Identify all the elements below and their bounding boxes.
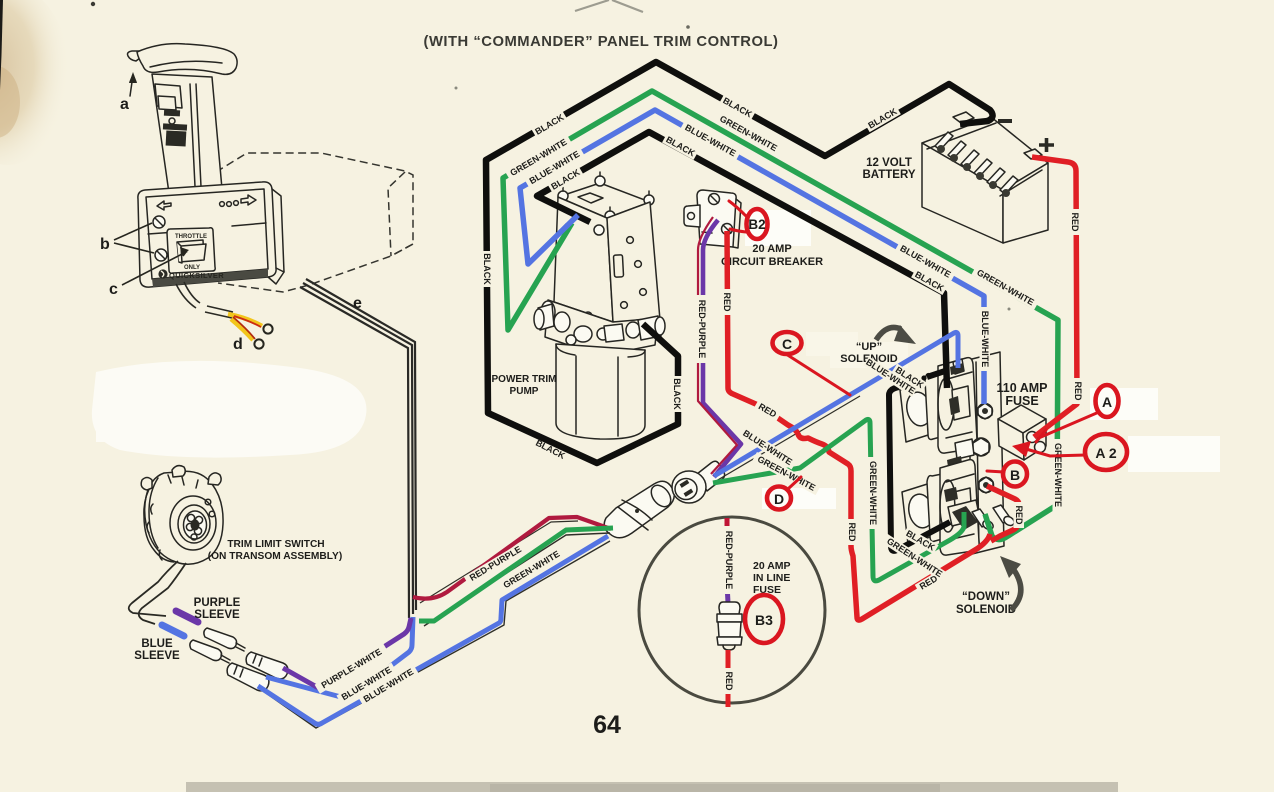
svg-text:CIRCUIT BREAKER: CIRCUIT BREAKER <box>721 256 823 268</box>
svg-text:GREEN-WHITE: GREEN-WHITE <box>868 461 878 525</box>
svg-text:RED: RED <box>847 522 857 542</box>
svg-text:64: 64 <box>593 711 621 739</box>
svg-text:POWER TRIM: POWER TRIM <box>492 374 557 385</box>
svg-text:e: e <box>353 295 362 312</box>
svg-text:RED: RED <box>724 671 734 691</box>
svg-text:RED: RED <box>1014 505 1024 525</box>
svg-text:BLACK: BLACK <box>672 378 682 410</box>
svg-text:IN LINE: IN LINE <box>753 572 790 584</box>
svg-text:d: d <box>233 336 243 353</box>
svg-text:B2: B2 <box>748 217 765 232</box>
svg-text:RED: RED <box>1070 212 1080 232</box>
svg-text:20 AMP: 20 AMP <box>752 243 791 255</box>
svg-text:(WITH “COMMANDER” PANEL TRIM C: (WITH “COMMANDER” PANEL TRIM CONTROL) <box>424 34 779 50</box>
svg-text:GREEN-WHITE: GREEN-WHITE <box>1053 443 1063 507</box>
svg-text:12 VOLT: 12 VOLT <box>866 157 912 169</box>
svg-text:(ON TRANSOM ASSEMBLY): (ON TRANSOM ASSEMBLY) <box>208 551 343 562</box>
svg-text:B3: B3 <box>755 612 773 628</box>
svg-text:“DOWN”: “DOWN” <box>962 591 1010 603</box>
svg-text:RED: RED <box>1073 381 1083 401</box>
svg-text:b: b <box>100 236 110 253</box>
svg-text:RED-PURPLE: RED-PURPLE <box>697 300 707 359</box>
svg-text:BLACK: BLACK <box>482 253 492 285</box>
svg-text:FUSE: FUSE <box>1005 394 1038 408</box>
svg-text:RED-PURPLE: RED-PURPLE <box>724 531 734 590</box>
svg-text:QUICKSILVER: QUICKSILVER <box>169 271 224 280</box>
svg-text:BATTERY: BATTERY <box>862 169 915 181</box>
svg-text:A: A <box>1102 394 1112 410</box>
svg-text:B: B <box>1010 467 1020 483</box>
svg-text:a: a <box>120 96 129 113</box>
svg-text:c: c <box>109 281 118 298</box>
svg-text:A 2: A 2 <box>1095 445 1116 461</box>
svg-text:20 AMP: 20 AMP <box>753 560 791 572</box>
svg-text:PUMP: PUMP <box>510 386 539 397</box>
svg-text:BLUE: BLUE <box>141 638 173 650</box>
svg-text:C: C <box>782 336 792 352</box>
svg-text:TRIM LIMIT SWITCH: TRIM LIMIT SWITCH <box>227 539 324 550</box>
svg-text:D: D <box>774 491 784 507</box>
svg-text:PURPLE: PURPLE <box>194 597 241 609</box>
svg-text:BLUE-WHITE: BLUE-WHITE <box>980 311 990 368</box>
svg-text:110 AMP: 110 AMP <box>997 381 1048 395</box>
svg-text:“UP”: “UP” <box>856 341 882 353</box>
svg-text:THROTTLE: THROTTLE <box>175 234 207 240</box>
svg-text:SOLENOID: SOLENOID <box>956 604 1016 616</box>
svg-text:RED: RED <box>722 292 732 312</box>
svg-text:SLEEVE: SLEEVE <box>134 650 180 662</box>
svg-text:SLEEVE: SLEEVE <box>194 609 240 621</box>
